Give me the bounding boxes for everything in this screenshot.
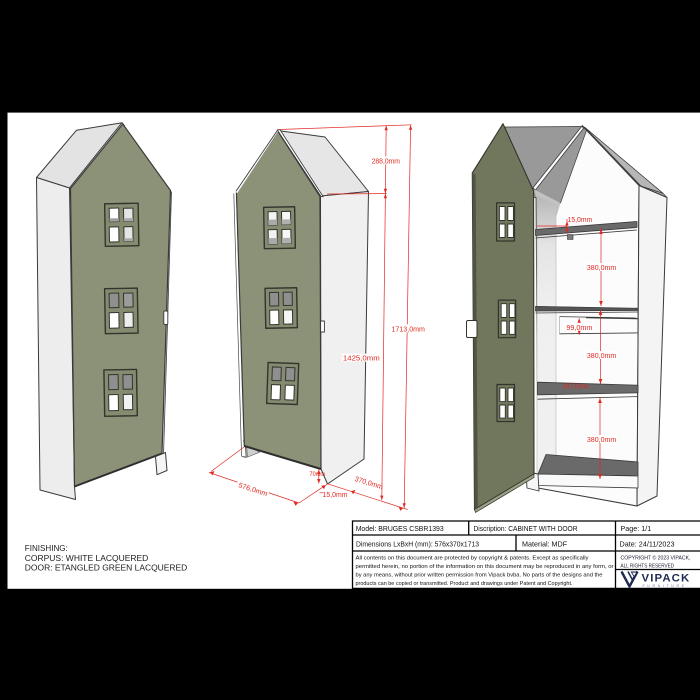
svg-text:FURNITURE: FURNITURE [643,584,687,588]
svg-text:380,0mm: 380,0mm [587,437,616,444]
svg-text:347,0mm: 347,0mm [563,383,589,390]
svg-text:70mm: 70mm [310,471,326,478]
svg-text:Dimensions LxBxH (mm): 576x370: Dimensions LxBxH (mm): 576x370x1713 [356,539,479,548]
svg-text:Date: 24/11/2023: Date: 24/11/2023 [620,539,675,548]
svg-text:FINISHING:: FINISHING: [25,543,68,553]
svg-text:288,0mm: 288,0mm [372,158,401,165]
svg-text:ALL RIGHTS RESERVED: ALL RIGHTS RESERVED [621,563,675,569]
svg-text:VIPACK: VIPACK [642,573,691,585]
svg-text:15,0mm: 15,0mm [568,217,593,224]
svg-text:CORPUS: WHITE LACQUERED: CORPUS: WHITE LACQUERED [25,553,149,563]
svg-text:15,0mm: 15,0mm [323,492,348,499]
svg-text:Material: MDF: Material: MDF [522,539,568,548]
svg-text:99,0mm: 99,0mm [566,325,592,332]
svg-text:380,0mm: 380,0mm [587,353,616,360]
svg-text:380,0mm: 380,0mm [587,265,616,272]
svg-text:by any means, without prior wr: by any means, without prior written perm… [356,573,604,579]
svg-text:Model: BRUGES CSBR1393: Model: BRUGES CSBR1393 [356,524,444,533]
svg-text:1425,0mm: 1425,0mm [343,356,380,363]
svg-text:All contents on this document: All contents on this document are protec… [356,556,589,562]
svg-text:Page: 1/1: Page: 1/1 [621,524,652,533]
svg-text:1713,0mm: 1713,0mm [392,326,426,333]
svg-text:products can be copied or tran: products can be copied or transmitted. P… [356,581,573,587]
svg-text:DOOR: ETANGLED GREEN LACQUERED: DOOR: ETANGLED GREEN LACQUERED [25,563,187,573]
svg-text:COPYRIGHT © 2023 VIPACK,: COPYRIGHT © 2023 VIPACK, [621,555,691,562]
svg-text:Discription: CABINET WITH DOOR: Discription: CABINET WITH DOOR [474,524,578,533]
svg-text:permitted herein, no portion o: permitted herein, no portion of the info… [356,564,614,570]
